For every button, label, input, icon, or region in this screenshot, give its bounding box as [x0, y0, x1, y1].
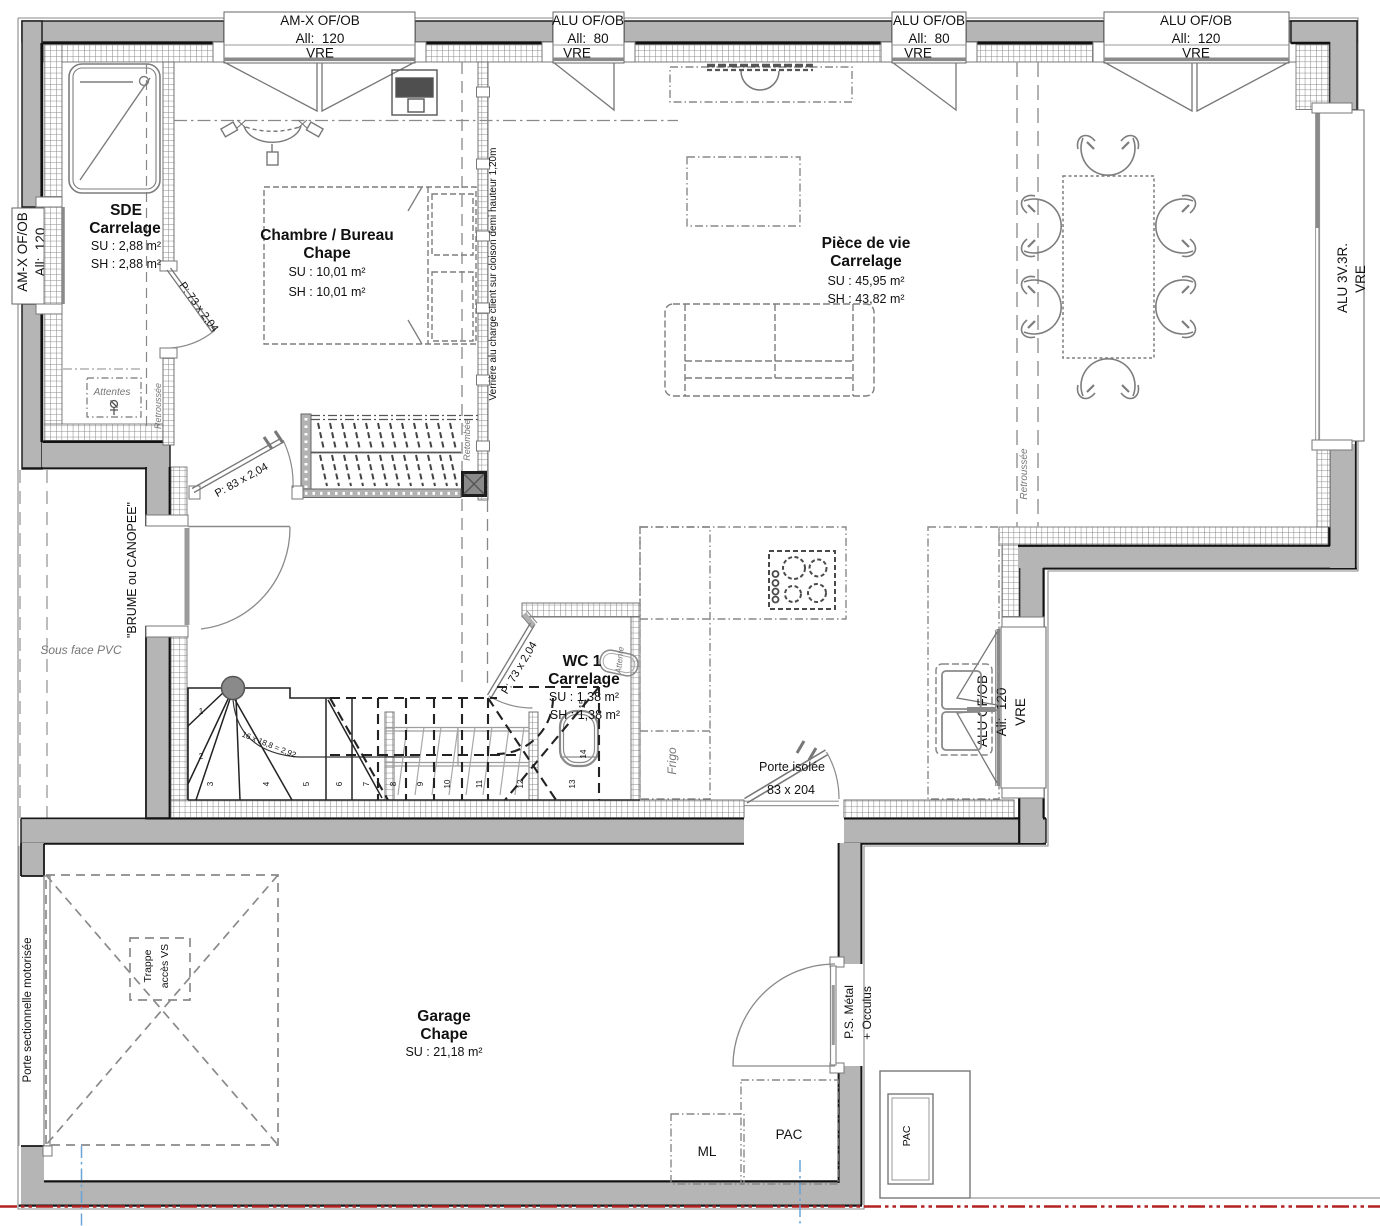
svg-text:VRE: VRE [1013, 698, 1028, 726]
svg-text:Attentes: Attentes [93, 387, 131, 398]
svg-text:SH : 10,01 m²: SH : 10,01 m² [288, 285, 365, 299]
svg-text:Verrière alu charge client sur: Verrière alu charge client sur cloison d… [488, 148, 499, 401]
svg-text:8: 8 [389, 781, 398, 786]
svg-text:PAC: PAC [776, 1127, 803, 1142]
svg-text:PAC: PAC [901, 1125, 913, 1146]
svg-text:11: 11 [475, 779, 484, 788]
svg-text:15: 15 [578, 699, 587, 708]
svg-text:13: 13 [568, 779, 577, 788]
svg-text:Porte sectionnelle motorisée: Porte sectionnelle motorisée [22, 937, 34, 1082]
svg-text:SH : 2,88 m²: SH : 2,88 m² [91, 257, 161, 271]
svg-text:Chape: Chape [303, 245, 351, 262]
svg-text:ALU OF/OB: ALU OF/OB [552, 13, 624, 28]
svg-text:Porte isolée: Porte isolée [759, 760, 825, 774]
svg-text:5: 5 [302, 781, 311, 786]
svg-text:All: 80: All: 80 [908, 31, 949, 46]
svg-text:Pièce de vie: Pièce de vie [822, 235, 911, 252]
svg-text:SDE: SDE [110, 202, 142, 219]
svg-text:Carrelage: Carrelage [548, 671, 620, 688]
svg-text:7: 7 [362, 781, 371, 786]
svg-text:12: 12 [516, 779, 525, 788]
svg-text:+ Occulus: + Occulus [860, 986, 874, 1040]
svg-text:Chape: Chape [420, 1026, 468, 1043]
svg-text:SU : 45,95 m²: SU : 45,95 m² [827, 274, 904, 288]
svg-text:SH : 1,38 m²: SH : 1,38 m² [550, 708, 620, 722]
svg-text:Sous face PVC: Sous face PVC [40, 643, 122, 657]
svg-text:Trappe: Trappe [142, 949, 154, 982]
svg-text:83 x 204: 83 x 204 [767, 783, 815, 797]
svg-text:14: 14 [579, 749, 588, 758]
svg-text:Retombée: Retombée [462, 419, 472, 461]
svg-text:AM-X OF/OB: AM-X OF/OB [280, 13, 360, 28]
svg-text:Retroussée: Retroussée [153, 383, 163, 429]
svg-text:Frigo: Frigo [665, 747, 679, 775]
svg-text:accès VS: accès VS [159, 944, 171, 988]
svg-text:9: 9 [416, 781, 425, 786]
svg-text:ALU OF/OB: ALU OF/OB [893, 13, 965, 28]
svg-text:WC 1: WC 1 [563, 653, 602, 670]
svg-text:SH : 43,82 m²: SH : 43,82 m² [827, 292, 904, 306]
svg-text:6: 6 [335, 781, 344, 786]
svg-text:All: 120: All: 120 [1172, 31, 1221, 46]
svg-text:"BRUME ou CANOPEE": "BRUME ou CANOPEE" [125, 502, 139, 638]
svg-text:10: 10 [443, 779, 452, 788]
svg-text:4: 4 [262, 781, 271, 786]
svg-text:P.S. Métal: P.S. Métal [842, 985, 856, 1039]
svg-text:SU : 10,01 m²: SU : 10,01 m² [288, 265, 365, 279]
svg-text:Carrelage: Carrelage [830, 253, 902, 270]
svg-text:AM-X OF/OB: AM-X OF/OB [15, 212, 30, 292]
svg-text:VRE: VRE [1353, 265, 1368, 293]
svg-text:Garage: Garage [417, 1008, 471, 1025]
svg-text:ML: ML [698, 1144, 717, 1159]
svg-text:3: 3 [206, 781, 215, 786]
svg-text:Retroussée: Retroussée [1019, 448, 1030, 500]
svg-text:1: 1 [199, 707, 204, 716]
svg-text:Carrelage: Carrelage [89, 220, 161, 237]
svg-text:SU : 2,88 m²: SU : 2,88 m² [91, 239, 161, 253]
svg-text:ALU 3V.3R.: ALU 3V.3R. [1335, 243, 1350, 313]
svg-text:Chambre / Bureau: Chambre / Bureau [260, 227, 394, 244]
svg-text:ALU OF/OB: ALU OF/OB [1160, 13, 1232, 28]
svg-text:2: 2 [199, 752, 204, 761]
svg-text:All: 120: All: 120 [296, 31, 345, 46]
svg-text:SU : 21,18 m²: SU : 21,18 m² [405, 1045, 482, 1059]
svg-text:All: 80: All: 80 [567, 31, 608, 46]
svg-text:All: 120: All: 120 [994, 688, 1009, 737]
